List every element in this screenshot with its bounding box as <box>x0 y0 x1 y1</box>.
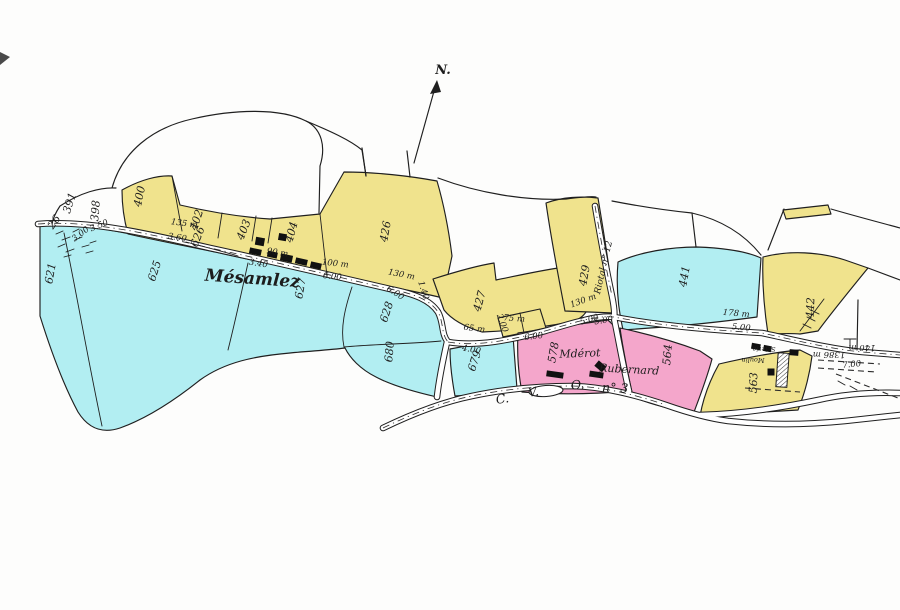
large-hatched-building <box>776 353 789 388</box>
meas-1386-m: 1386 m <box>813 349 845 359</box>
tiny-scierie: Scierie <box>752 345 775 353</box>
roadname-n-3: n° 3 <box>602 379 629 395</box>
building <box>768 369 774 375</box>
meas-75-m: 75 m <box>503 313 525 324</box>
building <box>255 237 264 245</box>
parcel-442: 442 <box>803 297 817 320</box>
cadastral-map-sheet: N. 3913984004024034044264274294414425635… <box>0 0 900 610</box>
parcel-564: 564 <box>660 344 675 366</box>
parcel-563: 563 <box>746 372 760 394</box>
roadname-o-: O. <box>570 376 585 392</box>
building <box>790 350 798 356</box>
meas-140-m: 140 m <box>849 342 876 352</box>
meas-5-00: 5.00 <box>731 322 751 334</box>
roadname-v-: V. <box>527 383 540 399</box>
place-md-rot: Mdérot <box>558 346 601 360</box>
roadname-c-: C. <box>495 390 510 407</box>
parcel-680: 680 <box>382 341 397 363</box>
north-label: N. <box>434 63 451 78</box>
parcel-398: 398 <box>88 200 103 222</box>
meas-7-00: 7.00 <box>842 359 862 371</box>
meas-6-00: 6.00 <box>322 271 342 283</box>
tiny-moulin: Moulin <box>741 356 765 364</box>
map-canvas: N. 3913984004024034044264274294414425635… <box>0 0 900 610</box>
